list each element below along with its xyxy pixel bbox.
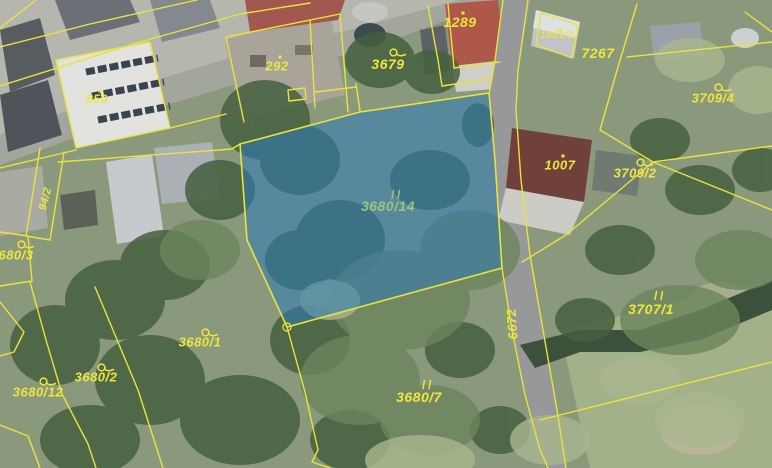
parcel-label-7267: 7267 bbox=[581, 46, 614, 60]
parcel-label-6672: 6672 bbox=[504, 308, 519, 340]
parcel-labels-layer: 85094/2292367912891061/272673709/4100737… bbox=[0, 0, 772, 468]
parcel-label-3709-4: 3709/4 bbox=[692, 92, 735, 105]
parcel-label-3680-2: 3680/2 bbox=[75, 371, 118, 384]
parcel-label-1061-2: 1061/2 bbox=[540, 31, 574, 41]
parcel-label-3709-2: 3709/2 bbox=[614, 167, 657, 180]
parcel-label-94-2: 94/2 bbox=[38, 186, 54, 211]
map-canvas[interactable]: 85094/2292367912891061/272673709/4100737… bbox=[0, 0, 772, 468]
parcel-label-3707-1: 3707/1 bbox=[628, 302, 674, 316]
parcel-label-3679: 3679 bbox=[371, 57, 404, 71]
parcel-label-3680-7: 3680/7 bbox=[396, 390, 442, 404]
parcel-label-680-3: 680/3 bbox=[0, 249, 34, 262]
parcel-label-3680-1: 3680/1 bbox=[179, 336, 222, 349]
parcel-label-1007: 1007 bbox=[545, 159, 576, 172]
parcel-label-3680-12: 3680/12 bbox=[13, 386, 64, 399]
parcel-label-1289: 1289 bbox=[443, 15, 476, 29]
parcel-label-292: 292 bbox=[265, 60, 288, 73]
parcel-label-850: 850 bbox=[86, 93, 108, 105]
parcel-label-3680-14: 3680/14 bbox=[361, 199, 415, 213]
